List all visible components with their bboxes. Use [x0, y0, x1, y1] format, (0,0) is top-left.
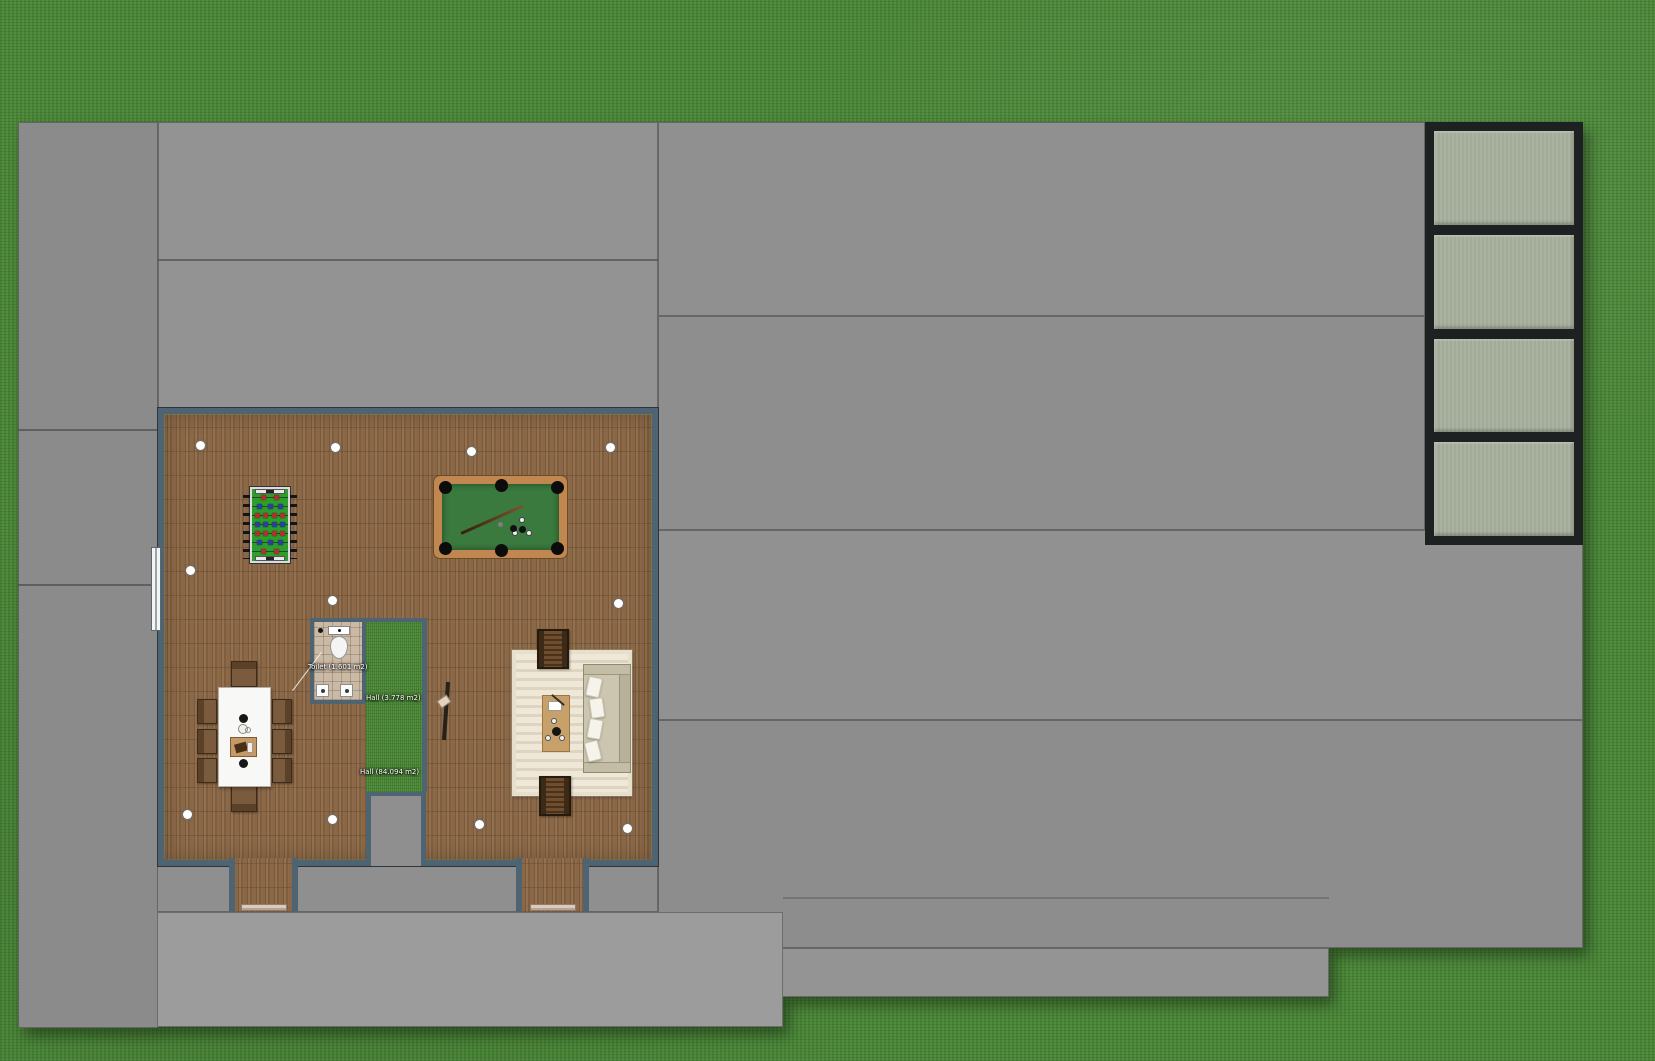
slab-seam — [783, 897, 1329, 899]
ceiling-light[interactable] — [623, 824, 632, 833]
sink[interactable] — [316, 684, 329, 697]
door-threshold[interactable] — [530, 904, 576, 911]
window[interactable] — [151, 547, 161, 631]
ceiling-light[interactable] — [328, 596, 337, 605]
ceiling-light[interactable] — [467, 447, 476, 456]
dining-table[interactable] — [218, 687, 271, 787]
hall-corridor[interactable] — [366, 618, 427, 792]
ceiling-light[interactable] — [331, 443, 340, 452]
skylight-pane[interactable] — [1434, 235, 1574, 329]
foosball-goal — [255, 556, 285, 561]
plate — [239, 714, 248, 723]
ceiling-light[interactable] — [183, 810, 192, 819]
pool-pocket — [551, 481, 564, 494]
billiard-ball — [520, 518, 524, 522]
coffee-table[interactable] — [542, 695, 570, 752]
ceiling-light[interactable] — [614, 599, 623, 608]
dining-chair[interactable] — [197, 729, 217, 754]
dining-chair[interactable] — [231, 661, 257, 687]
bowl — [552, 727, 561, 736]
billiard-ball — [498, 522, 503, 527]
plate — [239, 759, 248, 768]
foosball-rod — [252, 495, 288, 500]
dining-chair[interactable] — [197, 758, 217, 783]
toilet-light-dot — [318, 628, 323, 633]
skylight-pane[interactable] — [1434, 339, 1574, 433]
cup — [238, 724, 248, 734]
toilet-room[interactable] — [310, 618, 366, 704]
building: Toilet (1.601 m2) Hall (3.778 m2) Hall (… — [0, 0, 1655, 1061]
toilet-bowl[interactable] — [330, 636, 348, 659]
sofa-pillow — [584, 740, 602, 763]
sofa-armrest — [584, 665, 630, 675]
foosball-handles-right — [290, 495, 297, 559]
pool-pocket — [551, 542, 564, 555]
sofa[interactable] — [583, 664, 631, 773]
patio-slab-left[interactable] — [18, 122, 158, 1028]
wicker-armchair[interactable] — [537, 629, 569, 669]
slab-seam — [18, 429, 158, 431]
wicker-armchair[interactable] — [539, 776, 571, 816]
roof-slab-right-3[interactable] — [658, 530, 1583, 720]
faucet — [321, 689, 325, 693]
door-alcove-left — [229, 858, 298, 912]
foosball-rod — [252, 522, 288, 527]
pool-table[interactable] — [433, 475, 568, 559]
foosball-goal — [255, 489, 285, 494]
dining-chair[interactable] — [197, 699, 217, 724]
serving-tray — [230, 737, 257, 757]
dining-chair[interactable] — [272, 729, 292, 754]
patio-notch — [366, 792, 426, 866]
slab-seam — [18, 584, 158, 586]
pool-pocket — [439, 542, 452, 555]
foosball-rod — [252, 504, 288, 509]
dining-chair[interactable] — [272, 699, 292, 724]
ceiling-light[interactable] — [328, 815, 337, 824]
floor-plan-canvas: Toilet (1.601 m2) Hall (3.778 m2) Hall (… — [0, 0, 1655, 1061]
glass-skylight[interactable] — [1425, 122, 1583, 545]
sofa-pillow — [589, 697, 606, 719]
pool-pocket — [495, 544, 508, 557]
skylight-pane[interactable] — [1434, 442, 1574, 536]
coaster — [546, 736, 550, 740]
roof-slab-right-4[interactable] — [658, 720, 1583, 948]
dining-chair[interactable] — [272, 758, 292, 783]
pool-pocket — [439, 481, 452, 494]
sofa-backrest — [619, 665, 630, 772]
sink[interactable] — [340, 684, 353, 697]
foosball-rod — [252, 531, 288, 536]
coaster — [560, 736, 564, 740]
pool-pocket — [495, 479, 508, 492]
porch-slab[interactable] — [157, 912, 783, 1027]
foosball-rod — [252, 540, 288, 545]
sofa-pillow — [585, 676, 603, 698]
foosball-handles-left — [243, 495, 250, 559]
skylight-pane[interactable] — [1434, 131, 1574, 225]
ceiling-light[interactable] — [196, 441, 205, 450]
hall-small-label: Hall (3.778 m2) — [366, 694, 421, 702]
ceiling-light[interactable] — [606, 443, 615, 452]
foosball-rod — [252, 513, 288, 518]
billiard-ball — [527, 531, 531, 535]
hall-large-label: Hall (84.094 m2) — [360, 768, 419, 776]
door-threshold[interactable] — [241, 904, 287, 911]
dining-chair[interactable] — [231, 786, 257, 812]
slab-seam — [158, 259, 658, 261]
coaster — [552, 719, 556, 723]
faucet — [345, 689, 349, 693]
foosball-rod — [252, 549, 288, 554]
toilet-label: Toilet (1.601 m2) — [308, 663, 368, 671]
flush-button — [338, 629, 341, 632]
ceiling-light[interactable] — [186, 566, 195, 575]
sofa-pillow — [586, 718, 603, 740]
door-alcove-right — [516, 858, 589, 912]
ceiling-light[interactable] — [475, 820, 484, 829]
sofa-armrest — [584, 762, 630, 772]
roof-slab-right-2[interactable] — [658, 316, 1425, 530]
foosball-table[interactable] — [250, 487, 290, 563]
billiard-ball — [519, 526, 526, 533]
patio-slab-top-center[interactable] — [158, 122, 658, 412]
billiard-ball — [510, 525, 517, 532]
toilet-tank[interactable] — [328, 626, 350, 635]
roof-slab-right-1[interactable] — [658, 122, 1425, 316]
